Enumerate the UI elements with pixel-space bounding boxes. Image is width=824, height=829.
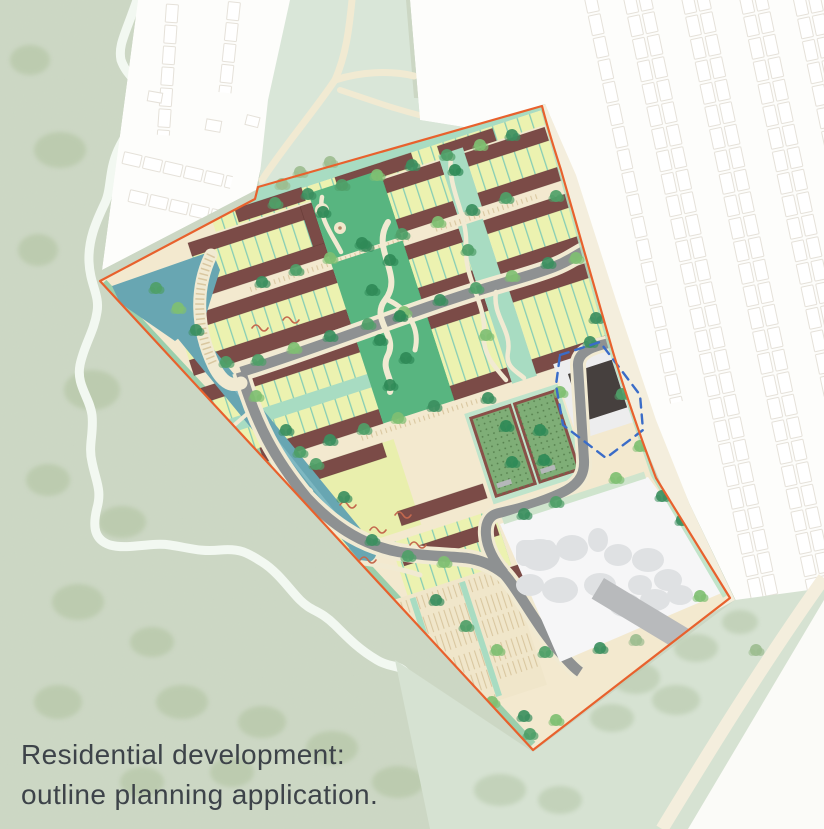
caption-line-2: outline planning application. <box>21 775 378 815</box>
caption-line-1: Residential development: <box>21 735 378 775</box>
site-plan-map <box>0 0 824 829</box>
masterplan-canvas: Residential development: outline plannin… <box>0 0 824 829</box>
caption: Residential development: outline plannin… <box>21 735 378 815</box>
